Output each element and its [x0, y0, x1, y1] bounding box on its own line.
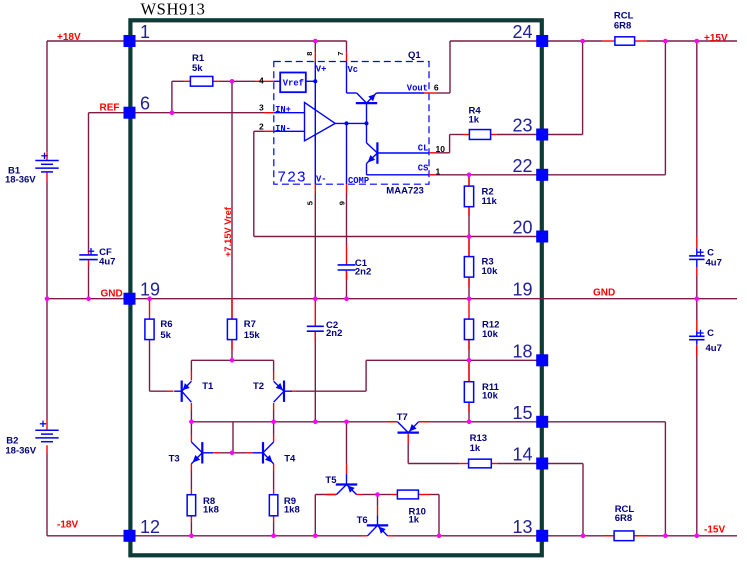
svg-text:5k: 5k — [192, 63, 203, 74]
svg-text:R7: R7 — [244, 319, 256, 330]
svg-text:1k: 1k — [470, 443, 481, 454]
svg-text:10k: 10k — [482, 266, 499, 277]
svg-text:6R8: 6R8 — [615, 513, 632, 524]
svg-text:1k8: 1k8 — [284, 504, 300, 515]
svg-text:20: 20 — [512, 218, 532, 238]
svg-text:13: 13 — [512, 517, 532, 537]
svg-text:18: 18 — [512, 341, 532, 361]
svg-text:15k: 15k — [244, 330, 261, 341]
svg-text:2n2: 2n2 — [355, 267, 371, 278]
svg-text:3: 3 — [259, 103, 264, 113]
svg-text:18-36V: 18-36V — [5, 175, 36, 186]
svg-text:5k: 5k — [160, 330, 171, 341]
svg-text:1: 1 — [140, 22, 150, 42]
svg-text:22: 22 — [512, 156, 532, 176]
svg-text:7: 7 — [336, 52, 345, 56]
svg-text:2: 2 — [259, 121, 264, 131]
svg-text:723: 723 — [278, 169, 308, 186]
svg-text:4u7: 4u7 — [706, 258, 722, 269]
svg-text:1: 1 — [436, 166, 441, 176]
svg-text:1k8: 1k8 — [203, 504, 219, 515]
svg-text:COMP: COMP — [348, 176, 369, 186]
svg-text:IN+: IN+ — [275, 105, 291, 115]
svg-text:V-: V- — [316, 175, 327, 185]
svg-text:24: 24 — [512, 22, 532, 42]
svg-text:10k: 10k — [482, 329, 499, 340]
svg-text:19: 19 — [512, 280, 532, 300]
svg-text:4u7: 4u7 — [99, 256, 115, 267]
svg-text:R6: R6 — [160, 319, 172, 330]
svg-text:+15V: +15V — [704, 33, 728, 44]
svg-text:-15V: -15V — [704, 525, 725, 536]
svg-text:T2: T2 — [253, 381, 264, 392]
svg-text:Vc: Vc — [348, 65, 359, 75]
svg-text:IN-: IN- — [275, 124, 291, 134]
svg-text:18-36V: 18-36V — [5, 445, 36, 456]
svg-text:12: 12 — [140, 517, 160, 537]
svg-text:23: 23 — [512, 116, 532, 136]
svg-text:C: C — [707, 328, 714, 339]
svg-text:10: 10 — [436, 144, 446, 154]
svg-text:CL: CL — [418, 144, 429, 154]
svg-text:2n2: 2n2 — [326, 328, 342, 339]
svg-text:19: 19 — [140, 280, 160, 300]
svg-text:14: 14 — [512, 445, 532, 465]
svg-text:T3: T3 — [169, 454, 180, 465]
svg-text:GND: GND — [593, 288, 615, 299]
svg-text:+18V: +18V — [57, 32, 81, 43]
svg-text:REF: REF — [100, 103, 120, 114]
svg-text:9: 9 — [338, 201, 347, 205]
svg-text:11k: 11k — [482, 196, 498, 207]
svg-text:4u7: 4u7 — [706, 343, 722, 354]
svg-text:T1: T1 — [202, 381, 214, 392]
svg-text:Vref: Vref — [283, 79, 304, 89]
svg-text:8: 8 — [305, 52, 314, 56]
svg-text:T4: T4 — [284, 454, 296, 465]
svg-text:GND: GND — [101, 289, 123, 300]
svg-text:1k: 1k — [469, 114, 480, 125]
svg-text:+7.15V Vref: +7.15V Vref — [223, 206, 233, 257]
svg-text:T7: T7 — [397, 412, 408, 423]
svg-text:CS: CS — [418, 164, 429, 174]
svg-text:6: 6 — [434, 82, 439, 92]
svg-text:6: 6 — [140, 94, 150, 114]
svg-text:6R8: 6R8 — [614, 20, 631, 31]
svg-text:1k: 1k — [409, 515, 420, 526]
svg-text:-18V: -18V — [57, 519, 78, 530]
svg-text:Q1: Q1 — [408, 50, 421, 61]
svg-text:15: 15 — [512, 403, 532, 423]
svg-text:WSH913: WSH913 — [141, 0, 206, 19]
svg-text:V+: V+ — [316, 65, 327, 75]
svg-text:5: 5 — [306, 201, 315, 205]
svg-text:Vout: Vout — [407, 84, 428, 94]
svg-text:10k: 10k — [482, 391, 499, 402]
svg-text:T5: T5 — [325, 475, 337, 486]
svg-text:4: 4 — [259, 76, 264, 86]
svg-text:T6: T6 — [357, 515, 368, 526]
svg-text:MAA723: MAA723 — [386, 186, 424, 197]
